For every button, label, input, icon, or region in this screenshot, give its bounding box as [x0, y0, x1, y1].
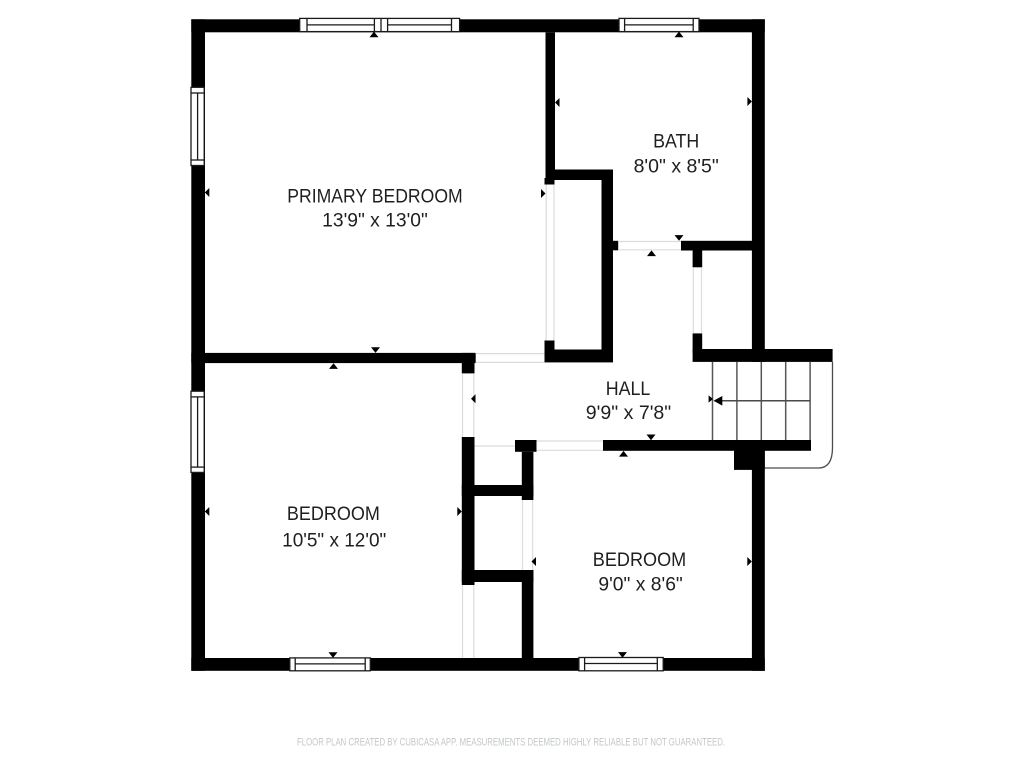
svg-text:BATH: BATH	[653, 131, 699, 152]
svg-text:9'0" x 8'6": 9'0" x 8'6"	[598, 575, 682, 596]
svg-text:10'5" x 12'0": 10'5" x 12'0"	[282, 531, 386, 552]
svg-text:FLOOR PLAN CREATED BY CUBICASA: FLOOR PLAN CREATED BY CUBICASA APP. MEAS…	[297, 737, 725, 749]
svg-text:9'9" x 7'8": 9'9" x 7'8"	[586, 403, 672, 424]
svg-text:PRIMARY BEDROOM: PRIMARY BEDROOM	[287, 187, 462, 208]
svg-text:BEDROOM: BEDROOM	[287, 504, 380, 525]
svg-text:BEDROOM: BEDROOM	[593, 550, 686, 571]
svg-text:HALL: HALL	[606, 379, 651, 400]
svg-text:13'9" x 13'0": 13'9" x 13'0"	[322, 211, 428, 232]
svg-text:8'0" x 8'5": 8'0" x 8'5"	[634, 157, 719, 178]
